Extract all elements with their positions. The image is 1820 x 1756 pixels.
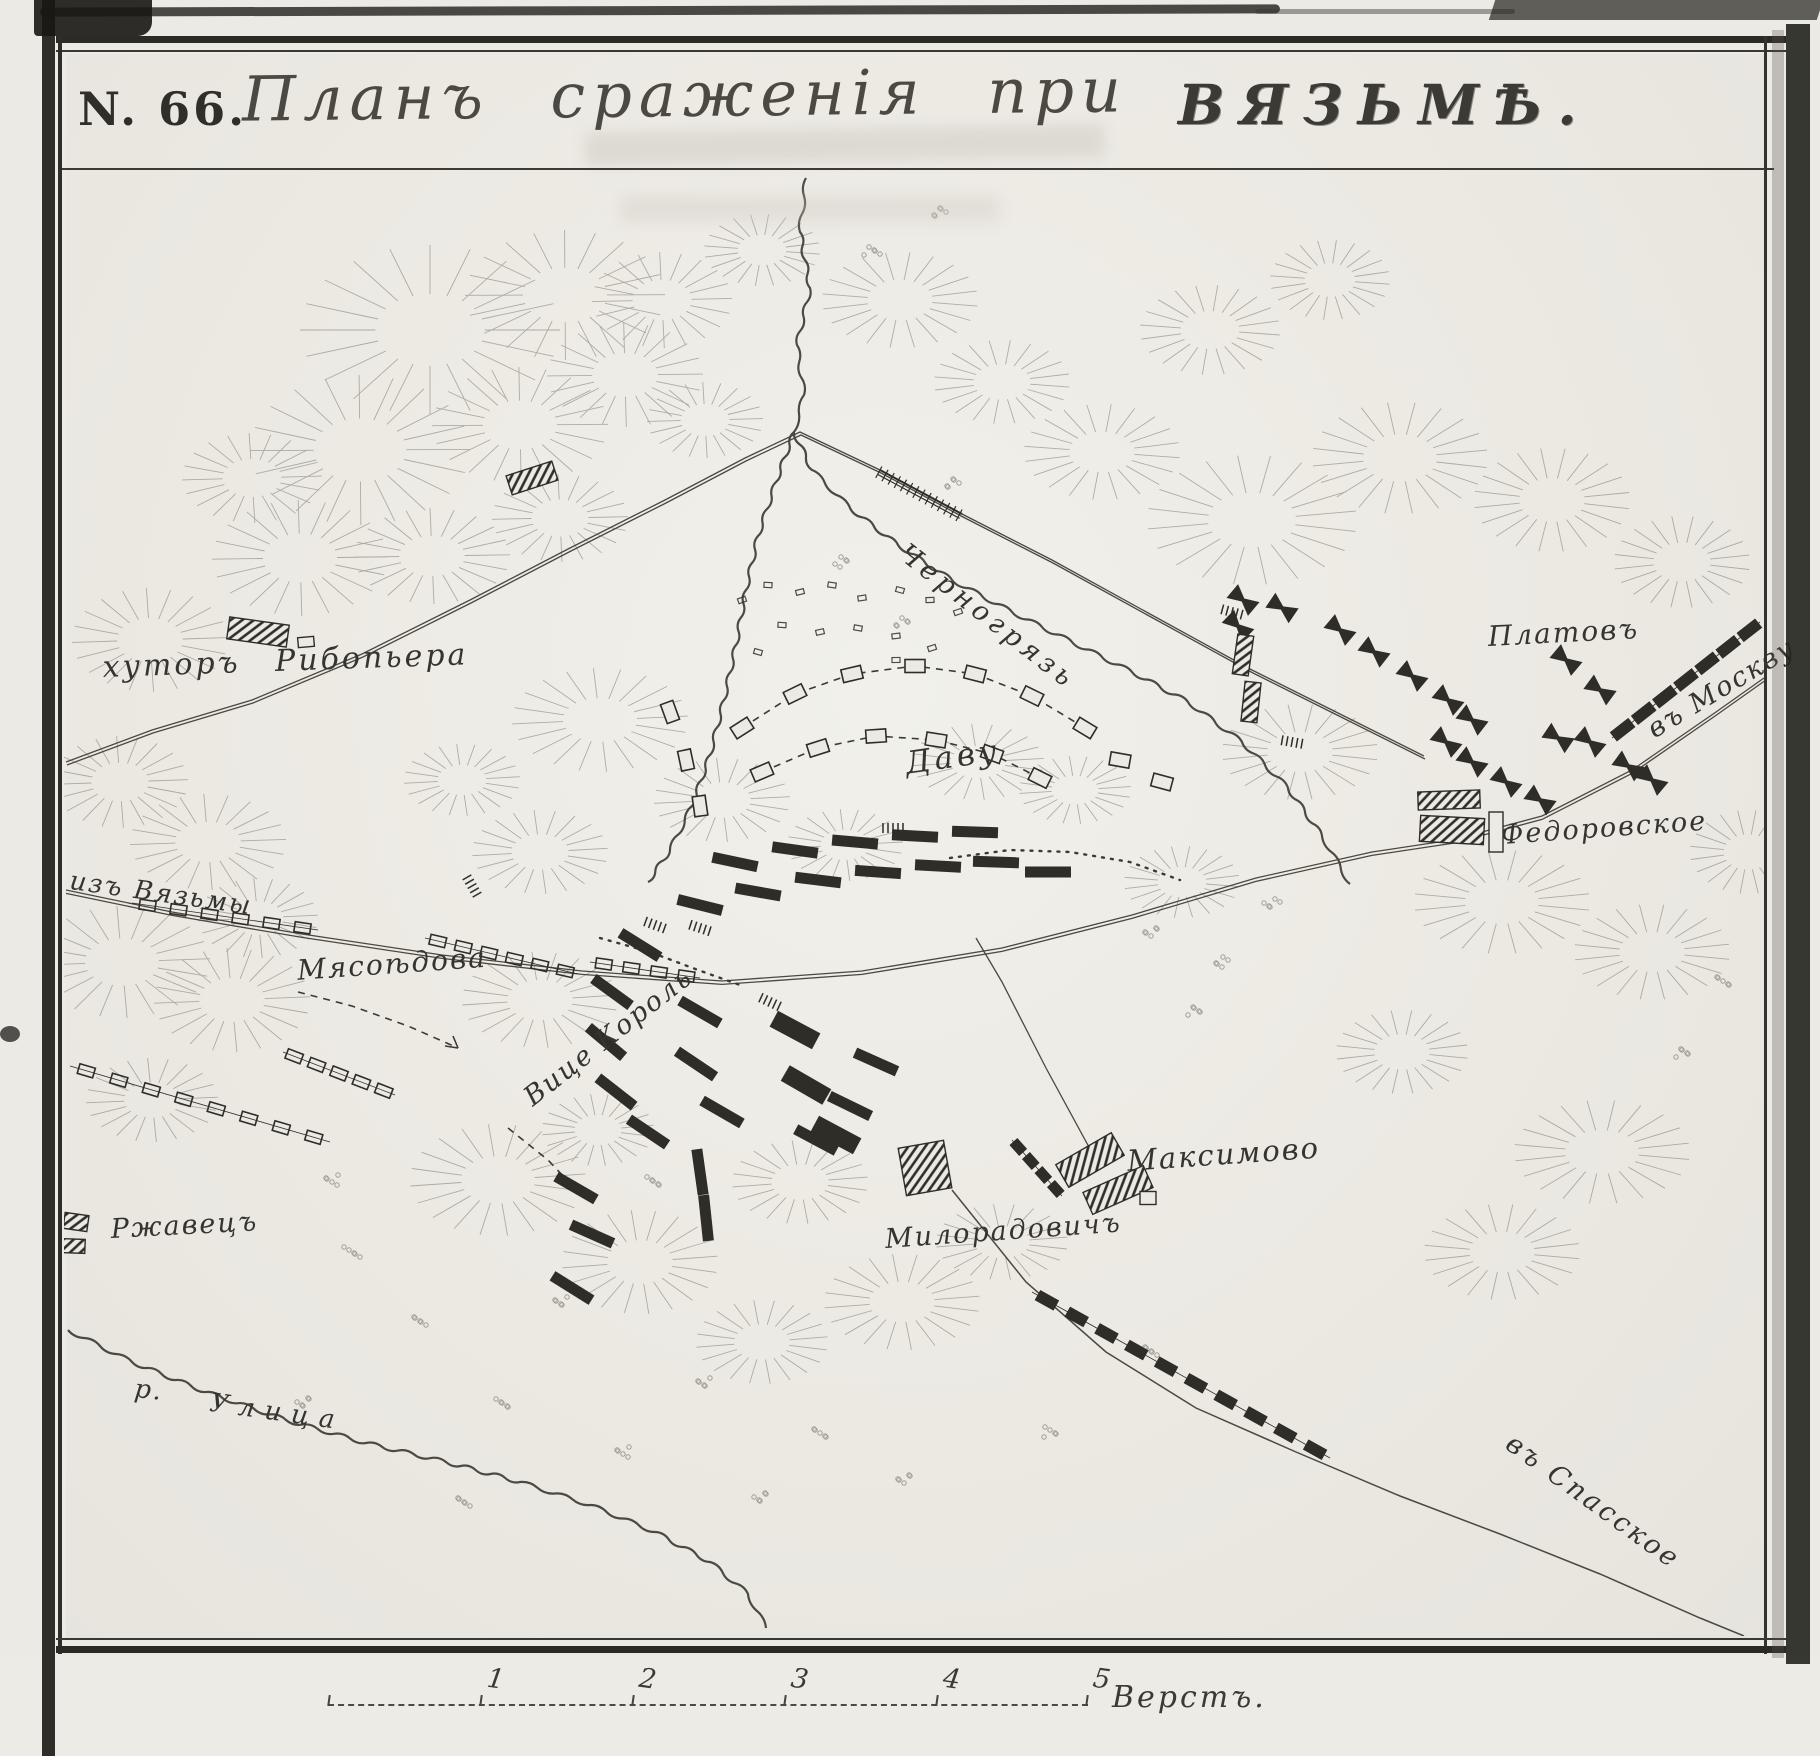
page-title: Планъ сраженія при bbox=[242, 53, 1129, 135]
map-canvas bbox=[0, 0, 1820, 1756]
page-title-place: ВЯЗЬМѢ. bbox=[1178, 72, 1592, 137]
camp-tents bbox=[737, 582, 962, 663]
frame-top-line bbox=[56, 36, 1786, 43]
frame-bottom-thin-line bbox=[56, 1638, 1786, 1640]
scan-edge-right-faint bbox=[1772, 30, 1784, 1658]
battle-map-page: хуторъ Рибопьера Черногрязь Платовъ въ М… bbox=[0, 0, 1820, 1756]
scale-tick-label: 3 bbox=[789, 1663, 810, 1696]
scan-edge-right bbox=[1786, 24, 1810, 1664]
scan-corner-top-left bbox=[34, 0, 152, 36]
scan-edge-left bbox=[42, 0, 55, 1756]
frame-top-thin-line bbox=[56, 50, 1786, 52]
scale-unit-label: Верстъ. bbox=[1112, 1680, 1267, 1715]
frame-right-line bbox=[1764, 36, 1767, 1654]
road-to-spasskoe bbox=[952, 1190, 1744, 1636]
plate-number: N. 66. bbox=[78, 82, 247, 136]
frame-left-line bbox=[58, 36, 62, 1654]
artillery-ticks bbox=[463, 605, 1303, 1011]
chernogryaz-west-branch bbox=[648, 432, 794, 882]
frame-bottom-line bbox=[56, 1646, 1786, 1653]
scale-tick-label: 4 bbox=[941, 1663, 962, 1696]
ghost-print-smudge bbox=[620, 196, 1000, 222]
scan-corner-top-right bbox=[1489, 0, 1820, 20]
title-divider-rule bbox=[62, 168, 1774, 170]
scrub-clusters bbox=[295, 206, 1731, 1508]
chernogryaz-river-line bbox=[794, 178, 1350, 884]
village-track bbox=[976, 938, 1096, 1160]
advance-arrowhead bbox=[445, 1036, 458, 1048]
scale-tick-label: 2 bbox=[637, 1663, 658, 1696]
scale-line bbox=[328, 1704, 1088, 1706]
scale-bar: 1 2 3 4 5 bbox=[328, 1678, 1088, 1714]
scan-edge-top-faint bbox=[1255, 9, 1515, 14]
label-river-abbr: р. bbox=[133, 1374, 165, 1407]
ulitsa-river-line bbox=[68, 1330, 766, 1628]
ink-blob bbox=[0, 1026, 20, 1042]
scale-tick-label: 1 bbox=[485, 1663, 506, 1696]
